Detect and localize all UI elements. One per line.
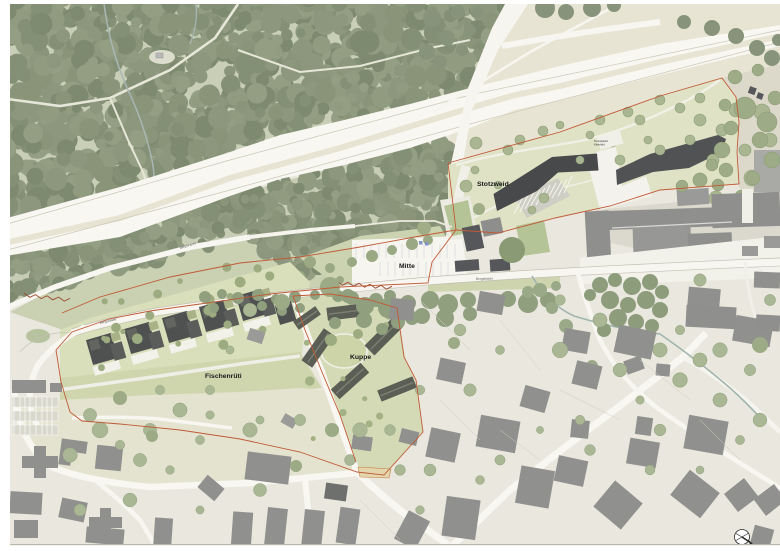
svg-text:Bergstrasse: Bergstrasse bbox=[476, 276, 493, 281]
svg-text:Kleinfeld: Kleinfeld bbox=[594, 142, 605, 146]
svg-text:Fischenrüti: Fischenrüti bbox=[205, 373, 242, 380]
svg-text:Stotzweid: Stotzweid bbox=[477, 181, 509, 188]
svg-text:Kuppe: Kuppe bbox=[350, 354, 371, 361]
svg-text:Mitte: Mitte bbox=[399, 263, 415, 270]
